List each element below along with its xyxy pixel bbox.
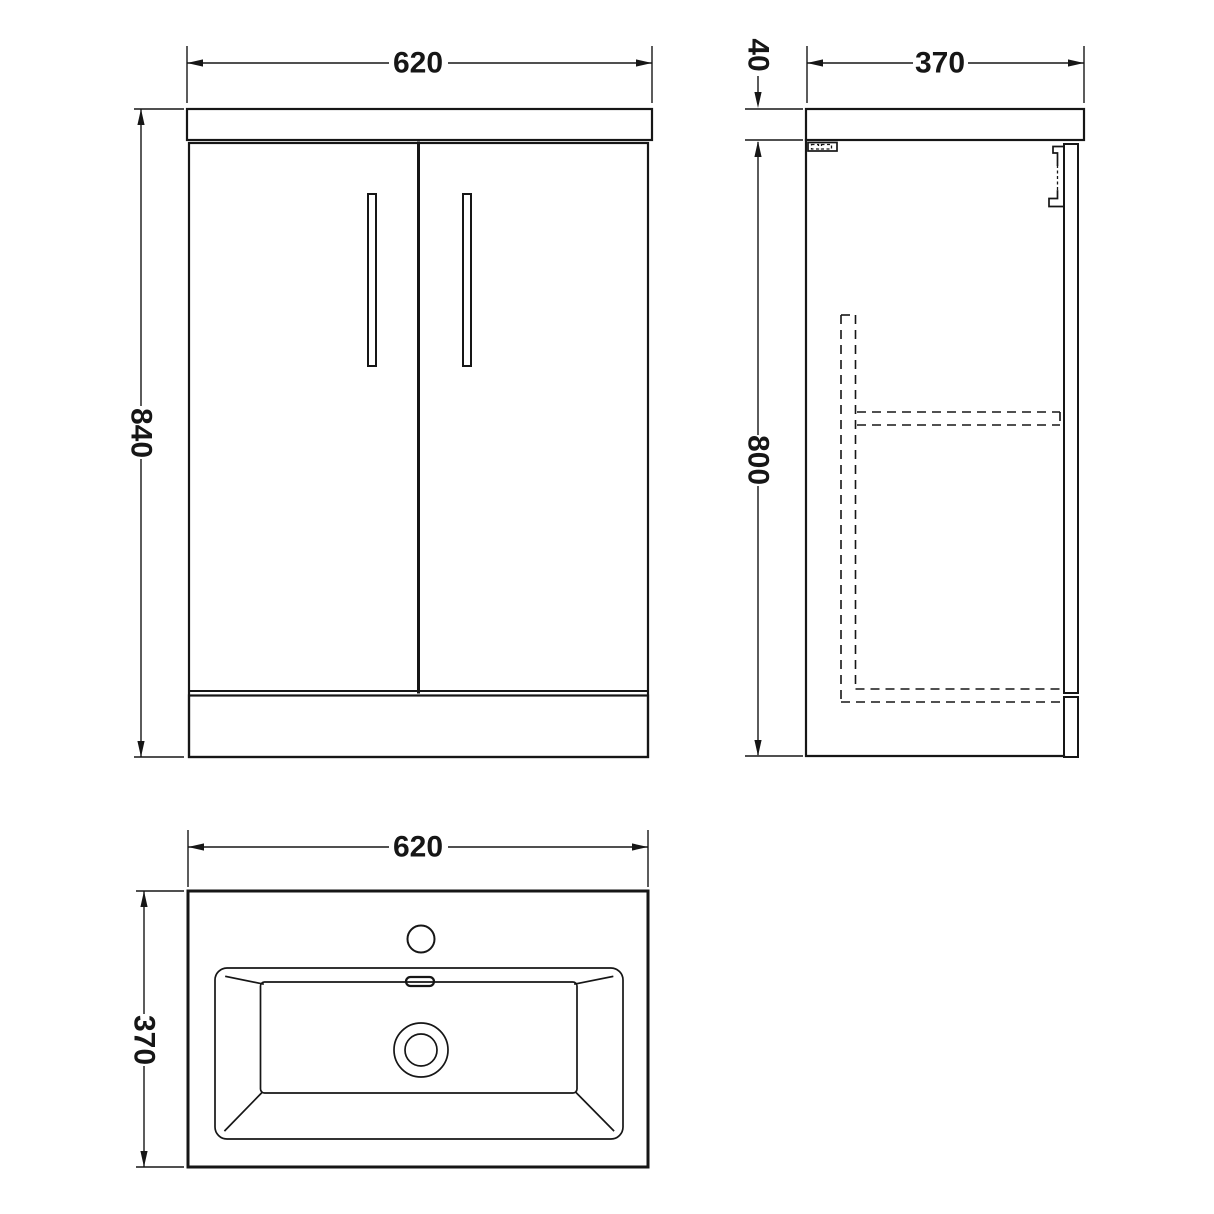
arrowhead-right	[636, 59, 652, 66]
arrowhead-right	[632, 843, 648, 850]
drain-outer-ring	[394, 1023, 448, 1077]
dimension-label: 40	[742, 38, 775, 71]
dimension-label: 620	[393, 831, 443, 864]
dimension-front-width: 620	[187, 46, 652, 103]
basin-corner-line	[226, 977, 263, 985]
basin-outer-edge	[188, 891, 648, 1167]
dimension-label: 800	[742, 435, 775, 485]
front-view: 620 840	[125, 46, 653, 757]
tap-hole	[408, 926, 435, 953]
arrowhead-left	[188, 843, 204, 850]
dimension-side-depth: 370	[807, 46, 1084, 103]
basin-corner-line	[576, 1093, 614, 1131]
arrowhead-left	[807, 59, 823, 66]
dimension-side-height: 800	[742, 141, 804, 756]
door-handle-right	[463, 194, 471, 366]
dimension-label: 370	[915, 47, 965, 80]
arrowhead-down	[754, 740, 761, 756]
arrowhead-down	[754, 92, 761, 108]
technical-drawing-canvas: 620 840 370	[0, 0, 1214, 1214]
dimension-label: 620	[393, 47, 443, 80]
arrowhead-left	[187, 59, 203, 66]
waste-pipe-hidden-outline	[841, 315, 1064, 702]
dimension-basin-depth: 370	[128, 891, 185, 1167]
arrowhead-up	[140, 891, 147, 907]
dimension-counter-thickness: 40	[742, 38, 804, 140]
drain-inner-ring	[405, 1034, 437, 1066]
counter-top-side	[806, 109, 1084, 140]
dimension-front-height: 840	[125, 109, 185, 757]
door-side-profile	[1064, 144, 1078, 693]
bracket-outline	[808, 143, 837, 152]
basin-corner-line	[225, 1093, 262, 1131]
door-foot	[1064, 697, 1078, 757]
shelf-hidden-outline	[857, 412, 1060, 425]
basin-rim	[215, 968, 623, 1139]
bracket-slot	[822, 145, 832, 150]
plinth	[189, 696, 648, 758]
door-handle-left	[368, 194, 376, 366]
wall-bracket-detail	[808, 143, 837, 152]
arrowhead-up	[137, 109, 144, 125]
dimension-label: 840	[125, 408, 158, 458]
dimension-basin-width: 620	[188, 830, 648, 887]
arrowhead-right	[1068, 59, 1084, 66]
arrowhead-down	[140, 1151, 147, 1167]
basin-corner-line	[575, 977, 613, 985]
bracket-slot	[812, 145, 819, 150]
counter-top-front	[187, 109, 652, 140]
arrowhead-up	[754, 141, 761, 157]
basin-plan-view: 620 370	[128, 830, 649, 1167]
waste-drain	[394, 1023, 448, 1077]
hinge-bottom-step	[1049, 191, 1064, 207]
arrowhead-down	[137, 741, 144, 757]
cabinet-back-panel	[806, 140, 1064, 756]
side-view: 370 40 800	[742, 38, 1085, 757]
hinge-top-step	[1053, 147, 1064, 166]
dimension-label: 370	[128, 1015, 161, 1065]
hinge-detail	[1049, 147, 1064, 207]
